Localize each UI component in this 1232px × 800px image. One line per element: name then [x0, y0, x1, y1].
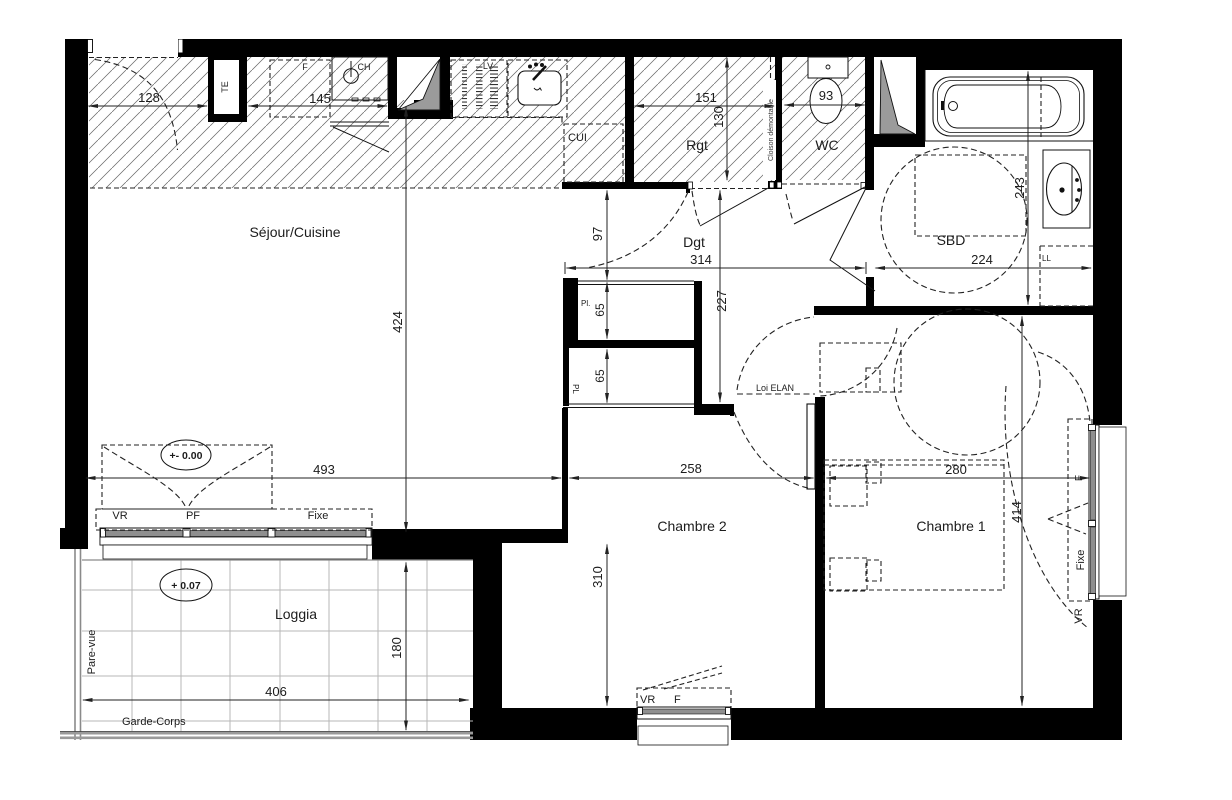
svg-text:65: 65 — [593, 369, 607, 383]
svg-text:130: 130 — [711, 106, 726, 128]
svg-text:Loggia: Loggia — [275, 606, 317, 622]
svg-text:VR: VR — [640, 694, 655, 706]
svg-text:93: 93 — [819, 88, 833, 103]
svg-text:Fixe: Fixe — [1075, 550, 1087, 571]
svg-text:227: 227 — [714, 290, 729, 312]
svg-text:151: 151 — [695, 90, 717, 105]
svg-text:+ 0.07: + 0.07 — [171, 580, 201, 592]
svg-text:65: 65 — [593, 303, 607, 317]
svg-text:WC: WC — [815, 137, 838, 153]
svg-text:VR: VR — [1073, 608, 1085, 623]
svg-text:128: 128 — [138, 90, 160, 105]
svg-text:Cloison démontable: Cloison démontable — [768, 99, 775, 161]
svg-text:414: 414 — [1009, 501, 1024, 523]
svg-text:314: 314 — [690, 252, 712, 267]
svg-text:145: 145 — [309, 91, 331, 106]
svg-text:Pl.: Pl. — [581, 299, 590, 308]
svg-text:PF: PF — [186, 510, 200, 522]
svg-text:Chambre 2: Chambre 2 — [657, 518, 726, 534]
svg-text:Dgt: Dgt — [683, 234, 705, 250]
svg-text:Rgt: Rgt — [686, 137, 708, 153]
svg-text:180: 180 — [389, 637, 404, 659]
svg-text:Chambre 1: Chambre 1 — [916, 518, 985, 534]
svg-text:LV: LV — [483, 61, 493, 71]
svg-text:Pare-vue: Pare-vue — [86, 630, 98, 675]
svg-text:493: 493 — [313, 462, 335, 477]
svg-text:LL: LL — [1042, 254, 1051, 263]
svg-text:424: 424 — [390, 311, 405, 333]
svg-text:Loi ELAN: Loi ELAN — [756, 383, 794, 393]
svg-text:Fixe: Fixe — [308, 510, 329, 522]
svg-text:CH: CH — [358, 62, 371, 72]
svg-text:F: F — [674, 694, 681, 706]
svg-text:F: F — [302, 62, 308, 72]
svg-text:280: 280 — [945, 462, 967, 477]
svg-text:310: 310 — [590, 566, 605, 588]
svg-text:97: 97 — [590, 227, 605, 241]
svg-text:VR: VR — [112, 510, 127, 522]
svg-text:PL: PL — [571, 384, 580, 394]
svg-text:+- 0.00: +- 0.00 — [170, 450, 203, 462]
svg-text:SBD: SBD — [937, 232, 966, 248]
svg-text:258: 258 — [680, 461, 702, 476]
svg-text:406: 406 — [265, 684, 287, 699]
svg-text:224: 224 — [971, 252, 993, 267]
svg-text:TE: TE — [220, 81, 230, 93]
svg-text:Garde-Corps: Garde-Corps — [122, 716, 186, 728]
svg-text:Séjour/Cuisine: Séjour/Cuisine — [249, 224, 340, 240]
svg-text:CUI: CUI — [568, 132, 587, 144]
svg-text:243: 243 — [1012, 177, 1027, 199]
